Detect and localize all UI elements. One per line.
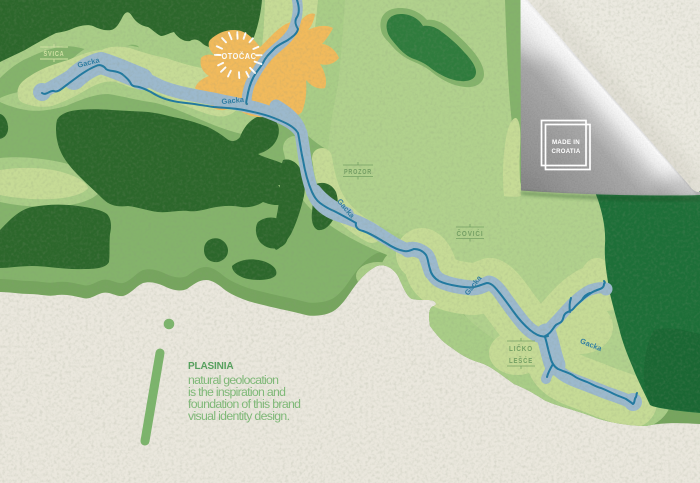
svg-text:MADE IN: MADE IN bbox=[552, 139, 580, 146]
svg-text:CROATIA: CROATIA bbox=[552, 148, 581, 155]
